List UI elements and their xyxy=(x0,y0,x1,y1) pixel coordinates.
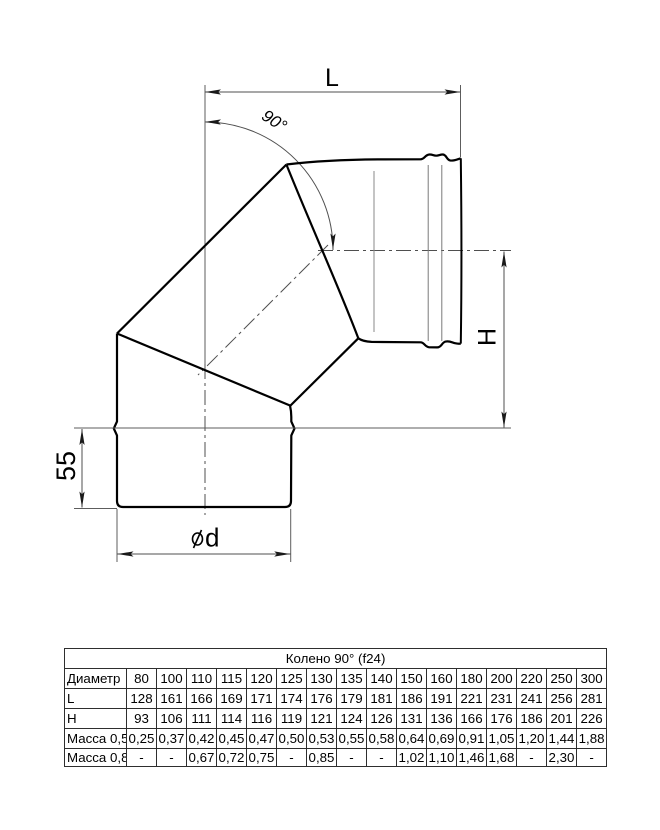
svg-text:90°: 90° xyxy=(258,106,290,136)
svg-text:L: L xyxy=(325,64,339,92)
svg-text:H: H xyxy=(474,328,502,346)
svg-text:55: 55 xyxy=(51,451,81,481)
svg-text:d: d xyxy=(205,523,219,553)
